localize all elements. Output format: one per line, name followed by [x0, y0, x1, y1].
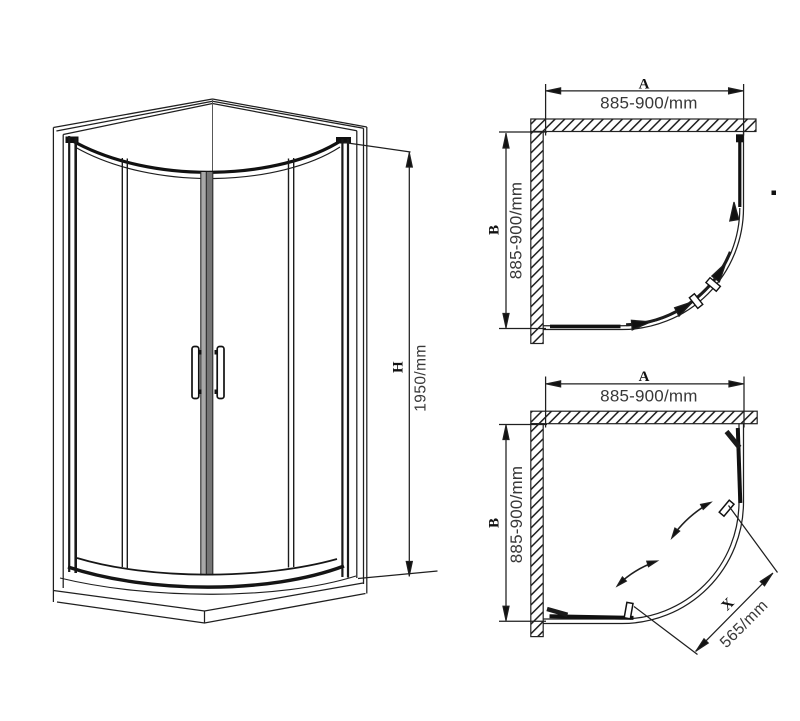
svg-text:B: B — [487, 225, 503, 235]
svg-text:1950/mm: 1950/mm — [413, 344, 430, 411]
svg-text:885-900/mm: 885-900/mm — [507, 182, 526, 279]
svg-text:885-900/mm: 885-900/mm — [600, 94, 697, 113]
svg-text:H: H — [391, 361, 407, 373]
svg-text:B: B — [487, 518, 503, 528]
svg-text:A: A — [639, 369, 650, 385]
svg-text:885-900/mm: 885-900/mm — [507, 466, 526, 563]
svg-text:A: A — [639, 77, 650, 93]
svg-text:885-900/mm: 885-900/mm — [600, 387, 697, 406]
